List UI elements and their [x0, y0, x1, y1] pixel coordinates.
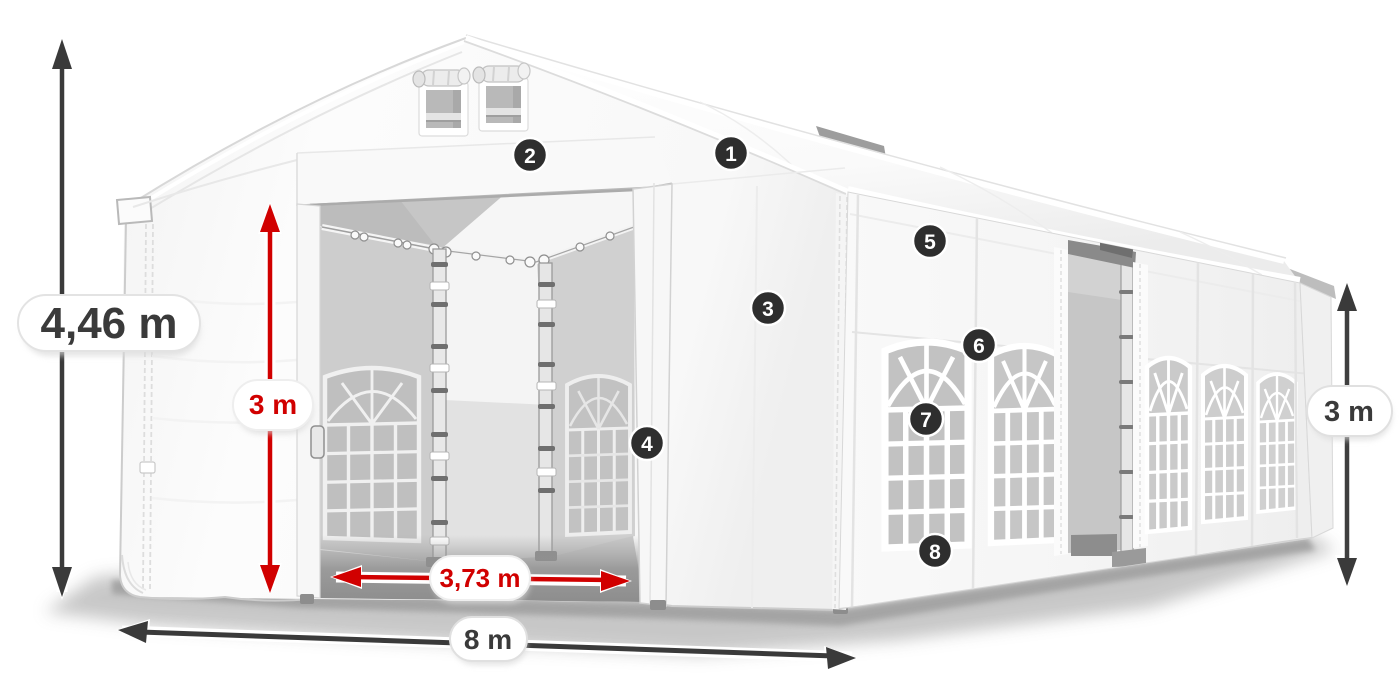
svg-text:8 m: 8 m	[464, 624, 512, 655]
svg-text:1: 1	[725, 143, 737, 166]
svg-text:4,46 m: 4,46 m	[41, 299, 178, 348]
svg-text:3: 3	[762, 298, 774, 321]
svg-text:3 m: 3 m	[249, 389, 297, 420]
svg-text:6: 6	[973, 335, 985, 358]
svg-text:4: 4	[641, 433, 653, 456]
svg-text:2: 2	[524, 145, 536, 168]
svg-text:3 m: 3 m	[1324, 396, 1374, 428]
svg-text:7: 7	[920, 409, 932, 432]
svg-text:3,73 m: 3,73 m	[440, 563, 521, 593]
svg-text:8: 8	[929, 541, 941, 564]
svg-text:5: 5	[924, 231, 936, 254]
